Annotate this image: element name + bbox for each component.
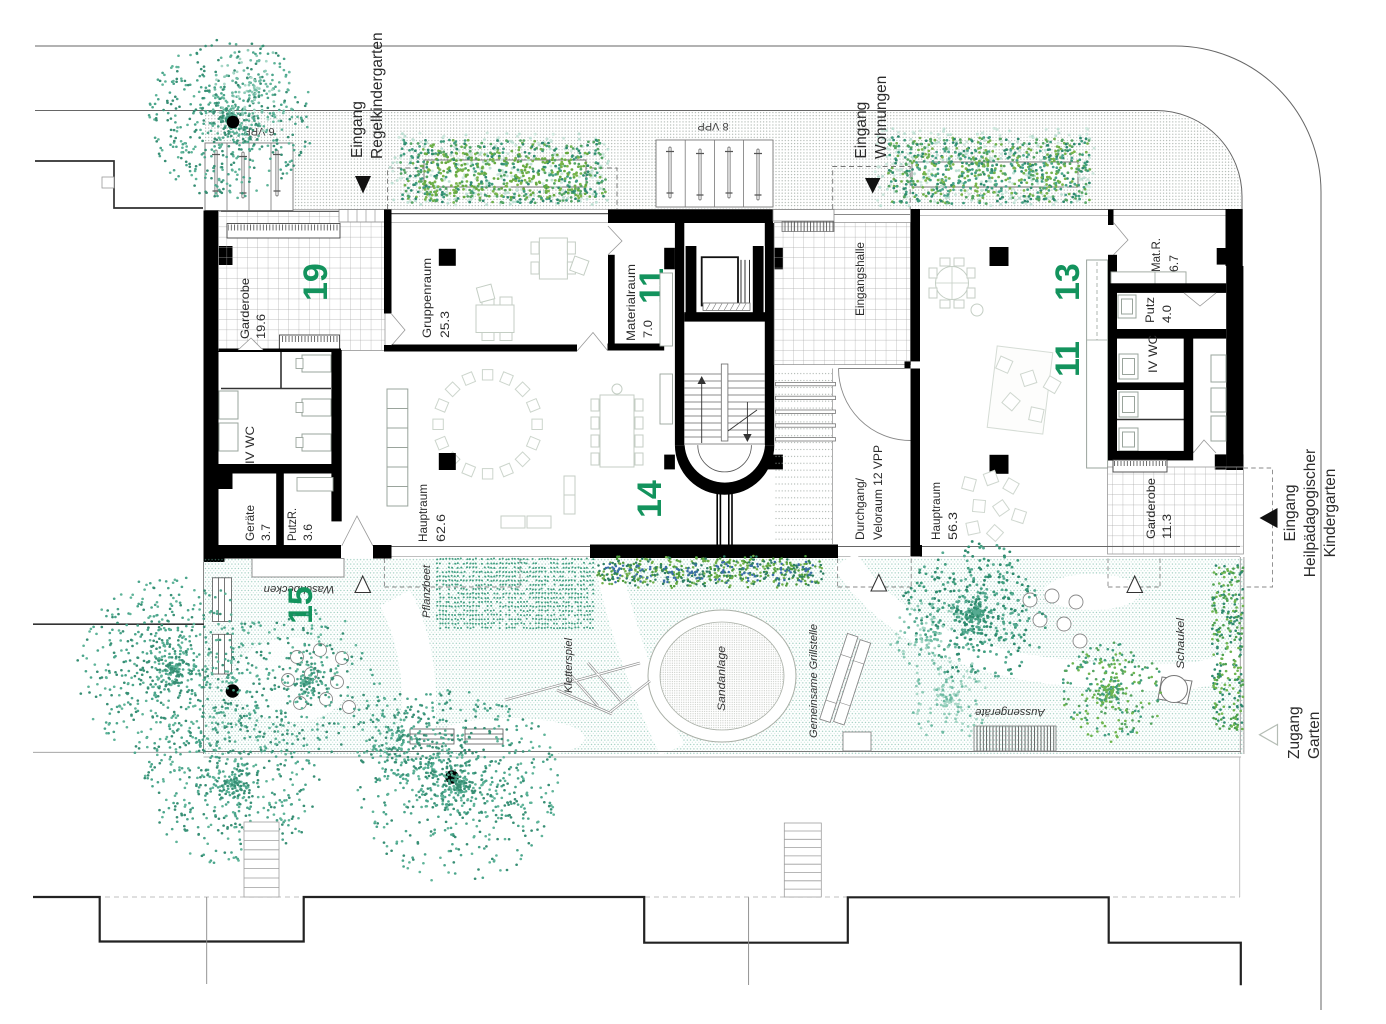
- svg-text:Garderobe: Garderobe: [1144, 478, 1158, 539]
- svg-text:19: 19: [297, 263, 335, 301]
- svg-text:7.0: 7.0: [641, 320, 655, 338]
- svg-text:13: 13: [1049, 263, 1087, 301]
- svg-text:Mat.R.: Mat.R.: [1149, 238, 1163, 272]
- svg-text:3.6: 3.6: [301, 524, 315, 541]
- svg-text:Geräte: Geräte: [243, 505, 257, 541]
- svg-text:6.7: 6.7: [1167, 255, 1181, 272]
- svg-text:PutzR.: PutzR.: [285, 508, 299, 541]
- svg-text:Veloraum 12 VPP: Veloraum 12 VPP: [871, 445, 885, 540]
- svg-text:Eingang: Eingang: [853, 102, 870, 159]
- svg-text:IV WC: IV WC: [243, 426, 257, 464]
- svg-text:Gemeinsame Grillstelle: Gemeinsame Grillstelle: [808, 624, 820, 738]
- svg-text:15: 15: [282, 586, 320, 624]
- svg-text:Gruppenraum: Gruppenraum: [420, 258, 434, 338]
- svg-text:Durchgang/: Durchgang/: [853, 477, 867, 540]
- svg-text:Regelkindergarten: Regelkindergarten: [369, 32, 386, 159]
- svg-text:14: 14: [631, 480, 669, 518]
- svg-text:Hauptraum: Hauptraum: [929, 482, 943, 540]
- svg-text:IV WC: IV WC: [1146, 335, 1160, 373]
- svg-text:Heilpädagogischer: Heilpädagogischer: [1302, 449, 1319, 577]
- svg-text:Hauptraum: Hauptraum: [416, 484, 430, 542]
- svg-text:Garten: Garten: [1306, 712, 1323, 759]
- svg-text:Schaukel: Schaukel: [1175, 617, 1187, 669]
- svg-text:Sandanlage: Sandanlage: [716, 646, 728, 711]
- svg-text:Kindergarten: Kindergarten: [1322, 469, 1339, 558]
- svg-text:Kletterspiel: Kletterspiel: [563, 638, 575, 693]
- svg-text:Aussengeräte: Aussengeräte: [975, 706, 1046, 718]
- svg-text:Pflanzbeet: Pflanzbeet: [421, 564, 433, 618]
- svg-text:11: 11: [1049, 341, 1087, 377]
- svg-text:Zugang: Zugang: [1286, 706, 1303, 759]
- svg-text:Eingang: Eingang: [1282, 485, 1299, 542]
- svg-text:Garderobe: Garderobe: [238, 278, 252, 339]
- svg-text:3.7: 3.7: [259, 524, 273, 541]
- svg-text:Wohnungen: Wohnungen: [873, 76, 890, 159]
- svg-text:11.3: 11.3: [1160, 514, 1174, 539]
- svg-text:56.3: 56.3: [946, 512, 960, 540]
- svg-text:Eingang: Eingang: [349, 101, 366, 158]
- svg-text:8 VPP: 8 VPP: [697, 120, 728, 132]
- svg-text:62.6: 62.6: [434, 514, 448, 542]
- svg-text:4.0: 4.0: [1160, 305, 1174, 323]
- svg-text:19.6: 19.6: [254, 314, 268, 339]
- svg-text:Eingangshalle: Eingangshalle: [853, 242, 867, 316]
- svg-text:25.3: 25.3: [438, 311, 452, 338]
- svg-text:Putz: Putz: [1143, 297, 1157, 323]
